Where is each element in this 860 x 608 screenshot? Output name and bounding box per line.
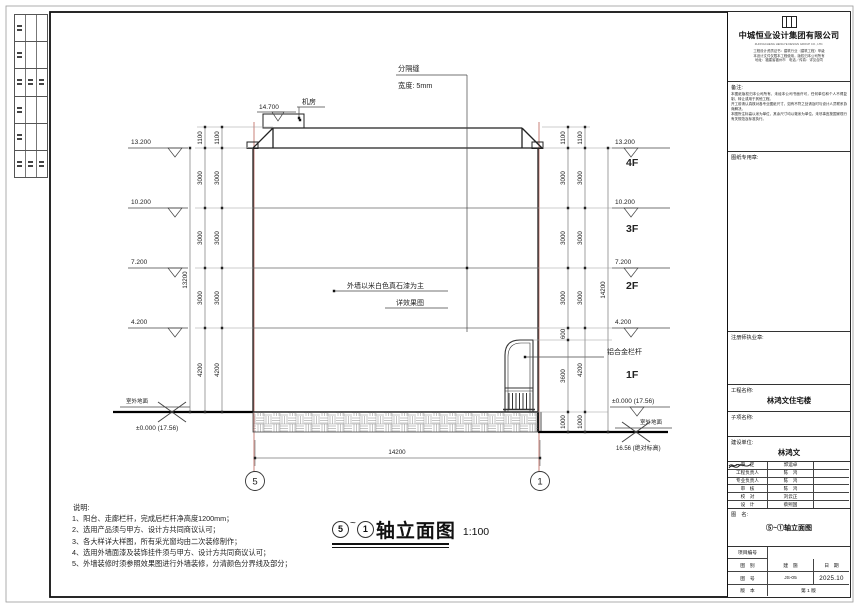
revision-row <box>15 42 47 69</box>
dim-label: 1100 <box>577 131 584 145</box>
remark-line: 本图所注标高以米为单位，其余尺寸均以毫米为单位。未尽事宜按国家现行有关规范及标准… <box>731 112 847 122</box>
approval-signature <box>814 493 849 501</box>
approval-signature <box>814 485 849 493</box>
approval-name: 蔡熙国 <box>768 501 814 509</box>
ground-label-right: 室外地面 <box>640 418 663 426</box>
dim-label: 3000 <box>577 291 584 305</box>
project-no-value <box>768 547 849 559</box>
level-label: 10.200 <box>615 199 635 206</box>
dim-label: 3000 <box>197 291 204 305</box>
dim-label: 4200 <box>214 363 221 377</box>
remark-text: 本图纸版权归本公司所有，未经本公司书面许可，任何单位和个人不得复制、转让或用于其… <box>728 91 850 123</box>
level-label: 10.200 <box>131 199 151 206</box>
level-label: 7.200 <box>131 259 148 266</box>
floor-label: 2F <box>626 280 639 292</box>
license-seal-label: 注册师执业章: <box>728 332 850 341</box>
subitem-section: 子项名称: <box>728 412 850 437</box>
revision-row <box>15 69 47 96</box>
zero-level-right: ±0.000 (17.56) <box>612 398 654 405</box>
client-section: 建设单位: 林鸿文 <box>728 437 850 462</box>
company-header: 中城恒业设计集团有限公司 ZHONGCHENG HENGYE DESIGN GR… <box>728 12 850 82</box>
approval-name: 郭运卓 <box>768 462 814 470</box>
dimension-labels: 1100 3000 3000 3000 4200 1100 3000 3000 … <box>182 131 607 456</box>
project-no-label: 项目编号 <box>728 547 768 559</box>
floor-label: 4F <box>626 157 639 169</box>
dim-label: 3600 <box>560 369 567 383</box>
caption-axis-bubble-end: 1 <box>357 521 374 538</box>
leader-lines <box>257 75 604 357</box>
remark-line: 开工前请认真核对各专业图纸尺寸，如有不符之处请及时与设计人员联系协商解决。 <box>731 102 847 112</box>
dim-label: 1100 <box>214 131 221 145</box>
note-item: 3、各大样详大样图，所有采光窗均由二次装修制作； <box>72 536 335 547</box>
dim-label: 4200 <box>577 363 584 377</box>
approval-name: 陈 鸿 <box>768 470 814 478</box>
caption-underline-thick <box>332 543 449 545</box>
dim-total-label: 14200 <box>600 281 607 299</box>
dim-total-label: 14200 <box>388 449 406 456</box>
dim-label: 4200 <box>197 363 204 377</box>
caption-axis-bubble-start: 5 <box>332 521 349 538</box>
level-label: 13.200 <box>131 139 151 146</box>
annotation-labels: 分隔缝 宽度: 5mm 机房 14.700 外墙以米白色真石漆为主 详效果图 铝… <box>126 64 663 452</box>
approval-role: 工程负责人 <box>728 470 768 478</box>
axis-bubble-label: 1 <box>537 477 542 488</box>
dim-label: 3000 <box>197 231 204 245</box>
dim-label: 1100 <box>197 131 204 145</box>
dim-label: 1000 <box>560 415 567 429</box>
revision-row <box>15 97 47 124</box>
client-value: 林鸿文 <box>728 447 850 458</box>
drawing-name-section: 图 名: ⑤~①轴立面图 <box>728 509 850 547</box>
category-value: 建 施 <box>768 559 814 572</box>
seal-label: 图纸专用章: <box>728 152 850 161</box>
wall-finish-note2: 详效果图 <box>396 298 424 307</box>
dim-label: 3000 <box>560 231 567 245</box>
leader-dots <box>299 118 525 357</box>
entrance-canopy <box>503 340 535 412</box>
drawing-info-table: 项目编号 图 别 建 施 日 期 图 号 JS-05 2025.10 版 本 第… <box>728 547 850 597</box>
caption-title: 轴立面图 <box>376 516 456 543</box>
approval-signature <box>814 501 849 509</box>
seal-section: 图纸专用章: <box>728 152 850 332</box>
approval-signature <box>814 462 849 470</box>
approval-name: 陈 鸿 <box>768 485 814 493</box>
approval-signature <box>814 470 849 478</box>
railing-label: 铝合金栏杆 <box>607 347 642 356</box>
cert-line: 地址：福建省福州市 电话／传真：详见合同 <box>732 58 846 63</box>
caption-scale: 1:100 <box>463 526 489 538</box>
zero-level-left: ±0.000 (17.56) <box>136 425 178 432</box>
dim-label: 1100 <box>560 131 567 145</box>
drawing-caption: 5 ~ 1 轴立面图 1:100 <box>332 516 502 552</box>
floor-label: 3F <box>626 223 639 235</box>
note-item: 1、阳台、走廊栏杆，完成后栏杆净高度1200mm； <box>72 513 335 524</box>
remark-label: 备注: <box>728 82 850 91</box>
remark-section: 备注: 本图纸版权归本公司所有，未经本公司书面许可，任何单位和个人不得复制、转让… <box>728 82 850 152</box>
dim-label: 600 <box>560 328 567 339</box>
company-logo-icon <box>782 16 797 28</box>
sheet-no-value: JS-05 <box>768 572 814 585</box>
level-label: 4.200 <box>131 319 148 326</box>
abs-level-right: 16.56 (绝对标高) <box>616 444 661 452</box>
company-name: 中城恒业设计集团有限公司 <box>728 29 850 41</box>
category-label: 图 别 <box>728 559 768 572</box>
top-level-label: 14.700 <box>259 104 279 111</box>
dim-label: 3000 <box>214 291 221 305</box>
revision-row <box>15 151 47 177</box>
sheet-no-label: 图 号 <box>728 572 768 585</box>
dim-label: 3000 <box>214 171 221 185</box>
dim-label: 3000 <box>560 291 567 305</box>
building-outline <box>247 114 543 432</box>
dim-label: 1000 <box>577 415 584 429</box>
dim-label: 3000 <box>577 171 584 185</box>
license-seal-section: 注册师执业章: <box>728 332 850 385</box>
notes-block: 说明: 1、阳台、走廊栏杆，完成后栏杆净高度1200mm； 2、选用产品须与甲方… <box>60 502 335 569</box>
dim-total-label: 13200 <box>182 271 189 289</box>
remark-line: 本图纸版权归本公司所有，未经本公司书面许可，任何单位和个人不得复制、转让或用于其… <box>731 92 847 102</box>
axis-bubbles <box>246 472 550 491</box>
dim-label: 3000 <box>577 231 584 245</box>
approval-role: 设 计 <box>728 501 768 509</box>
floor-label: 1F <box>626 369 639 381</box>
level-label: 4.200 <box>615 319 632 326</box>
extension-lines <box>195 127 612 412</box>
approval-role: 专业负责人 <box>728 478 768 486</box>
notes-title: 说明: <box>73 502 335 513</box>
date-value: 2025.10 <box>814 572 849 585</box>
note-item: 2、选用产品须与甲方、设计方共同商议认可； <box>72 524 335 535</box>
caption-tilde: ~ <box>350 518 356 529</box>
client-label: 建设单位: <box>728 437 850 446</box>
revision-strip <box>14 14 48 178</box>
dim-label: 3000 <box>214 231 221 245</box>
sep-width-label: 宽度: 5mm <box>398 81 432 90</box>
project-name-value: 林鸿文住宅楼 <box>728 395 850 406</box>
level-label: 7.200 <box>615 259 632 266</box>
drawing-sheet: 5 1 分隔缝 宽度: 5mm 机房 14.700 外墙以米白色真石漆为主 详效… <box>0 0 860 608</box>
foundation-hatch <box>253 412 538 432</box>
note-item: 4、选用外墙面漆及装饰挂件须与甲方、设计方共同商议认可； <box>72 547 335 558</box>
drawing-name-value: ⑤~①轴立面图 <box>728 523 850 533</box>
level-label: 13.200 <box>615 139 635 146</box>
approval-name: 刘云正 <box>768 493 814 501</box>
floor-lines <box>253 208 538 328</box>
ground-label-left: 室外地面 <box>126 397 149 405</box>
axis-bubble-label: 5 <box>252 477 257 488</box>
dim-label: 3000 <box>560 171 567 185</box>
company-name-en: ZHONGCHENG HENGYE DESIGN GROUP CO., LTD. <box>728 42 850 46</box>
subitem-label: 子项名称: <box>728 412 850 421</box>
machine-room-box <box>263 114 304 128</box>
version-value: 第 1 版 <box>768 585 849 596</box>
machine-room-label: 机房 <box>302 97 316 106</box>
railing-bars <box>509 393 530 409</box>
revision-row <box>15 124 47 151</box>
dim-label: 3000 <box>197 171 204 185</box>
approval-role: 校 对 <box>728 493 768 501</box>
project-name-label: 工程名称: <box>728 385 850 394</box>
caption-underline-thin <box>332 547 449 548</box>
drawing-name-label: 图 名: <box>728 509 850 518</box>
company-cert-info: 工程设计资质证书：建筑行业（建筑工程）甲级 本设计文件仅限本工程使用，版权归本公… <box>728 49 850 63</box>
approval-name: 陈 鸿 <box>768 478 814 486</box>
approvals-table: 审 定 郭运卓 工程负责人 陈 鸿 专业负责人 陈 鸿 审 核 陈 鸿 校 对 … <box>728 462 850 509</box>
note-item: 5、外墙装修时须参照效果图进行外墙装修，分清颜色分界线及部分； <box>72 558 335 569</box>
version-label: 版 本 <box>728 585 768 596</box>
sep-joint-label: 分隔缝 <box>398 64 420 73</box>
date-label: 日 期 <box>814 559 849 572</box>
revision-row <box>15 15 47 42</box>
approval-signature <box>814 478 849 486</box>
wall-finish-note: 外墙以米白色真石漆为主 <box>347 281 424 290</box>
project-name-section: 工程名称: 林鸿文住宅楼 <box>728 385 850 412</box>
title-block: 中城恒业设计集团有限公司 ZHONGCHENG HENGYE DESIGN GR… <box>727 12 850 597</box>
approval-role: 审 核 <box>728 485 768 493</box>
